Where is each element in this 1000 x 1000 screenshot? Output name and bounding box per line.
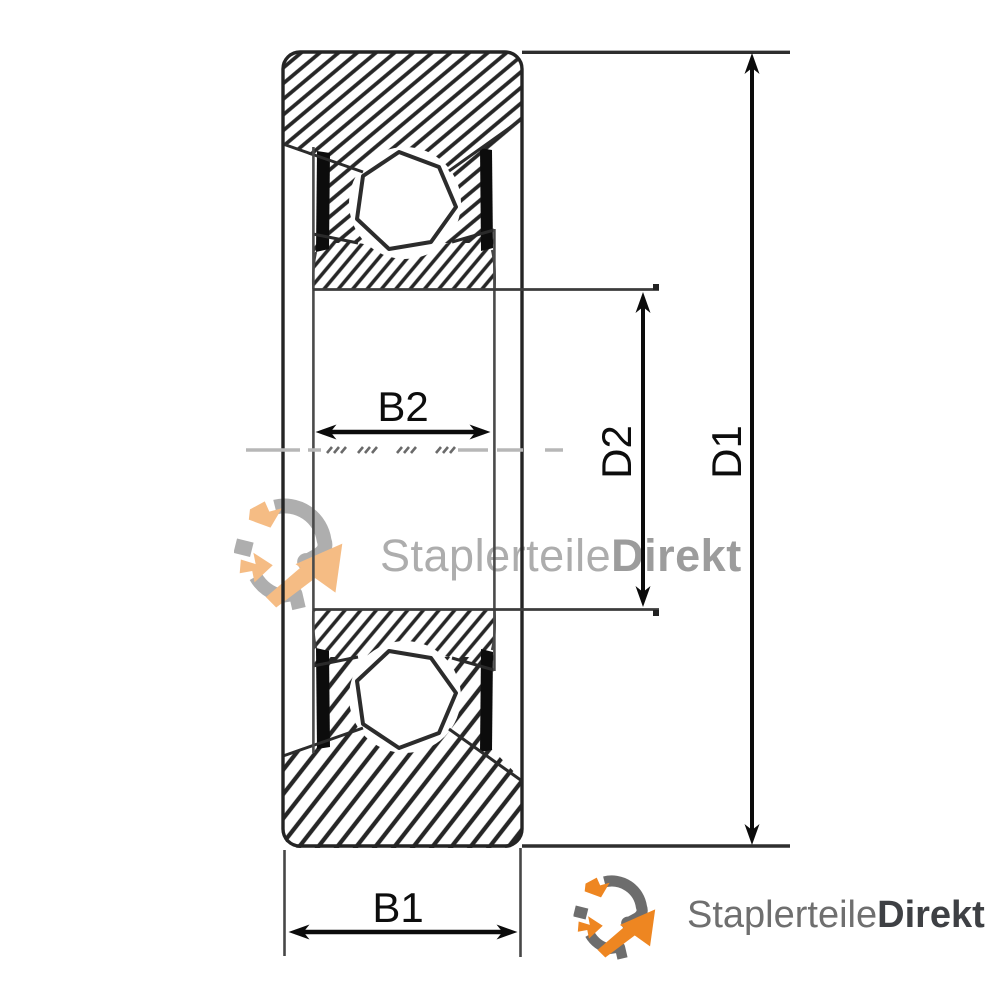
dimension-label-b1: B1: [372, 884, 423, 931]
seal-right-top: [480, 148, 493, 251]
technical-drawing-canvas: StaplerteileDirekt: [0, 0, 1000, 1000]
dimension-label-d1: D1: [703, 425, 750, 479]
centerline: [246, 447, 563, 453]
dimension-b2: B2: [316, 383, 491, 440]
extension-tick-d2-bottom: [653, 610, 659, 616]
dimension-label-d2: D2: [593, 425, 640, 479]
dimension-b1: B1: [289, 884, 518, 940]
seal-right-bottom: [480, 649, 493, 752]
bearing-assembly-top: [283, 52, 522, 290]
dimension-label-b2: B2: [377, 383, 428, 430]
bearing-cross-section-drawing: D1 D2 B2 B1: [0, 0, 1000, 1000]
extension-tick-d2-top: [653, 284, 659, 290]
dimension-d2: D2: [593, 292, 651, 607]
bearing-assembly-bottom: [283, 610, 522, 848]
dimension-d1: D1: [703, 53, 760, 845]
